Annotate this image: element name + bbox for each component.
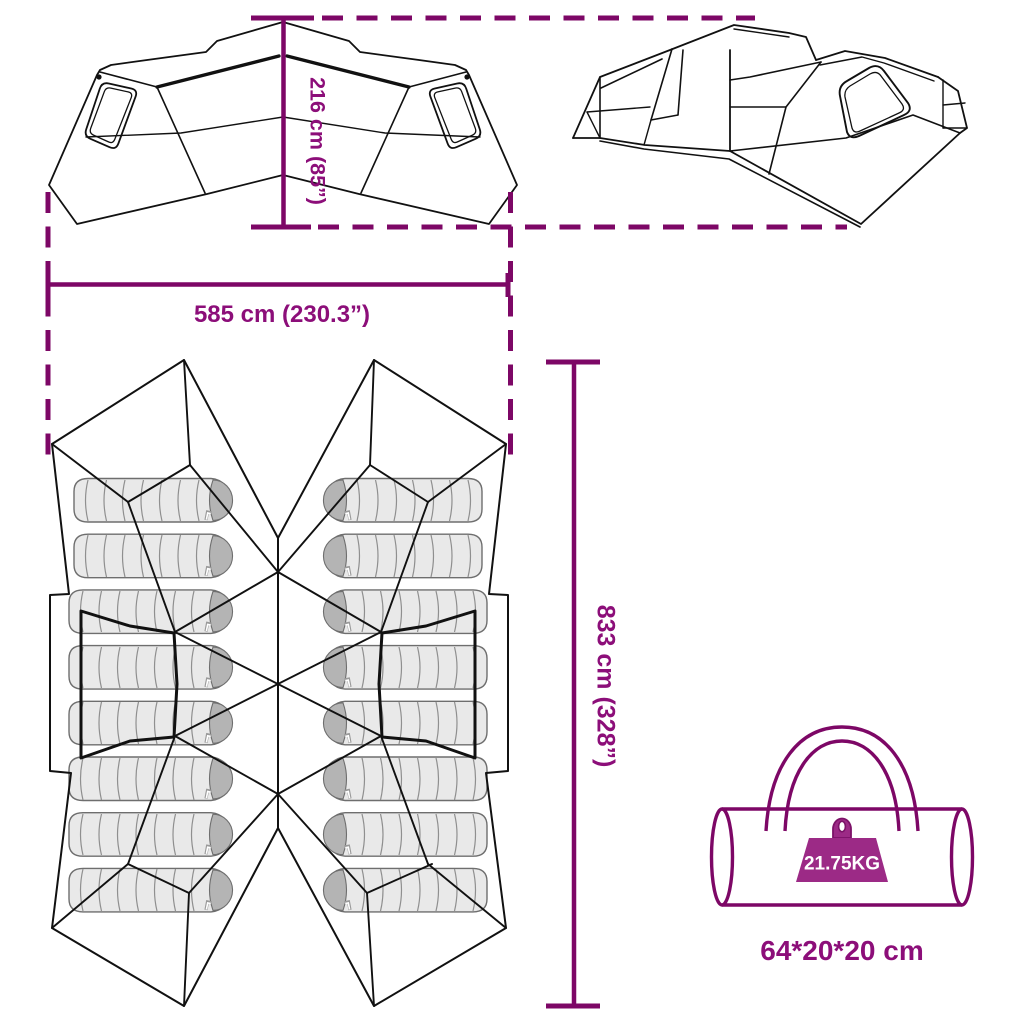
svg-text:21.75KG: 21.75KG <box>804 854 880 875</box>
svg-text:216 cm (85”): 216 cm (85”) <box>305 77 329 205</box>
svg-text:585 cm (230.3”): 585 cm (230.3”) <box>194 301 370 328</box>
svg-text:833 cm (328”): 833 cm (328”) <box>591 605 619 768</box>
svg-text:64*20*20 cm: 64*20*20 cm <box>760 935 923 966</box>
